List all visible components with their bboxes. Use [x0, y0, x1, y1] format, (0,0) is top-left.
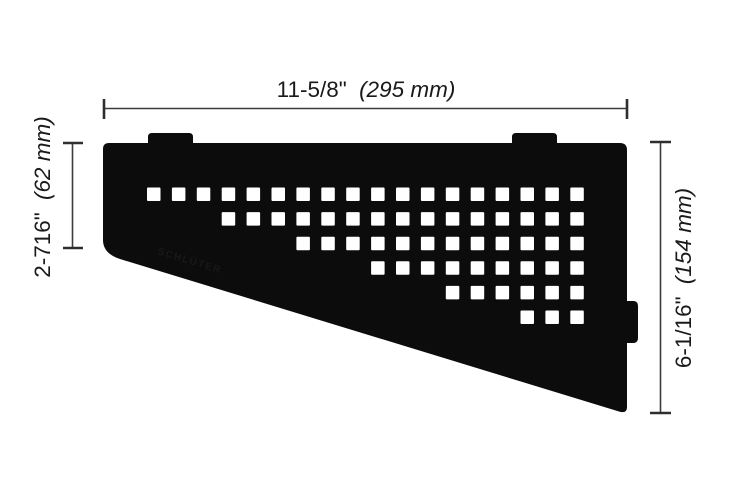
dimension-left-imperial: 2-716" [30, 212, 55, 278]
perforation-hole [570, 188, 584, 202]
perforation-hole [396, 237, 410, 251]
perforation-hole [545, 212, 559, 226]
perforation-hole [222, 212, 236, 226]
dimension-right: 6-1/16" (154 mm) [650, 142, 696, 413]
perforation-hole [471, 261, 485, 275]
perforation-hole [496, 212, 510, 226]
perforation-hole [521, 286, 535, 300]
perforation-hole [296, 188, 310, 202]
perforation-hole [296, 237, 310, 251]
perforation-hole [496, 237, 510, 251]
perforation-hole [570, 311, 584, 325]
perforation-hole [321, 188, 335, 202]
dimension-right-metric: (154 mm) [671, 188, 696, 284]
perforation-hole [545, 188, 559, 202]
perforation-hole [545, 311, 559, 325]
perforation-hole [421, 261, 435, 275]
perforation-hole [446, 286, 460, 300]
dimension-top: 11-5/8" (295 mm) [104, 77, 627, 119]
perforation-hole [222, 188, 236, 202]
perforation-hole [446, 261, 460, 275]
perforation-hole [421, 188, 435, 202]
perforation-hole [471, 286, 485, 300]
perforation-hole [371, 261, 385, 275]
perforation-hole [545, 237, 559, 251]
perforation-hole [371, 237, 385, 251]
perforation-hole [446, 212, 460, 226]
perforation-hole [396, 261, 410, 275]
perforation-hole [346, 188, 360, 202]
perforation-hole [247, 188, 261, 202]
perforation-hole [496, 286, 510, 300]
perforation-hole [521, 188, 535, 202]
perforation-hole [147, 188, 161, 202]
dimension-right-imperial: 6-1/16" [671, 296, 696, 368]
perforation-hole [471, 188, 485, 202]
perforation-hole [197, 188, 211, 202]
dimension-left-metric: (62 mm) [30, 116, 55, 200]
dimension-left-label: 2-716" (62 mm) [30, 116, 55, 278]
perforation-hole [346, 237, 360, 251]
perforation-hole [396, 212, 410, 226]
perforation-hole [272, 212, 286, 226]
perforation-hole [396, 188, 410, 202]
perforation-hole [471, 212, 485, 226]
perforation-hole [346, 212, 360, 226]
perforation-hole [496, 261, 510, 275]
perforation-hole [446, 188, 460, 202]
perforation-hole [570, 237, 584, 251]
perforation-hole [272, 188, 286, 202]
perforation-hole [521, 212, 535, 226]
perforation-hole [471, 237, 485, 251]
perforation-hole [321, 212, 335, 226]
dimension-right-label: 6-1/16" (154 mm) [671, 188, 696, 368]
dimension-left: 2-716" (62 mm) [30, 116, 83, 278]
perforation-hole [321, 237, 335, 251]
dimension-top-imperial: 11-5/8" [277, 77, 347, 102]
perforation-hole [521, 261, 535, 275]
perforation-hole [545, 286, 559, 300]
perforation-hole [247, 212, 261, 226]
perforation-hole [545, 261, 559, 275]
perforation-hole [496, 188, 510, 202]
shelf-dimension-diagram: SCHLÜTER 11-5/8" (295 mm) 2-716" (62 mm) [0, 0, 733, 497]
dimension-top-metric: (295 mm) [359, 77, 455, 102]
perforation-hole [296, 212, 310, 226]
perforation-hole [521, 237, 535, 251]
perforation-hole [421, 212, 435, 226]
perforation-hole [371, 212, 385, 226]
perforation-hole [570, 212, 584, 226]
dimension-top-label: 11-5/8" (295 mm) [277, 77, 456, 102]
perforation-hole [421, 237, 435, 251]
perforation-hole [570, 286, 584, 300]
perforation-hole [446, 237, 460, 251]
shelf-shape: SCHLÜTER [103, 133, 638, 412]
perforation-hole [570, 261, 584, 275]
perforation-hole [172, 188, 186, 202]
perforation-hole [521, 311, 535, 325]
diagram-canvas: SCHLÜTER 11-5/8" (295 mm) 2-716" (62 mm) [0, 0, 733, 497]
perforation-hole [371, 188, 385, 202]
